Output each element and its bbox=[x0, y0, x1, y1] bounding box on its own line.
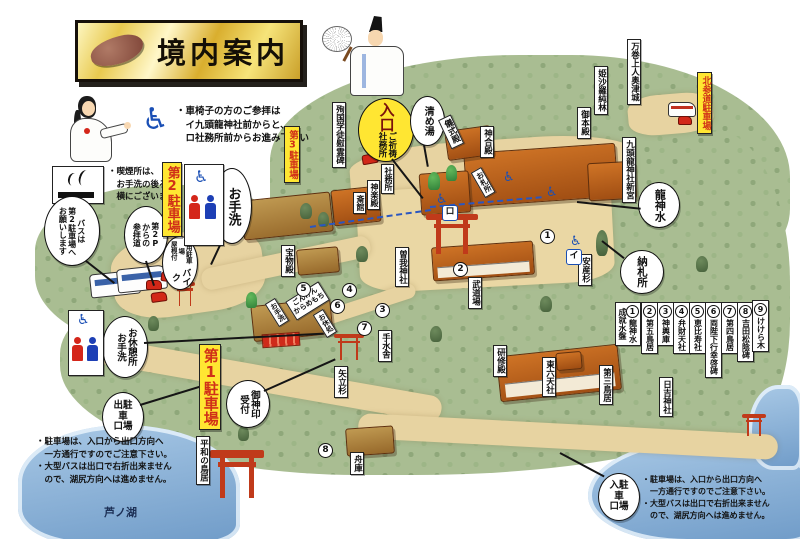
legend-item-1: 1龍神水 成就水盤 bbox=[615, 302, 641, 346]
tree bbox=[540, 296, 552, 312]
yatatesugi-label: 矢立杉 bbox=[334, 366, 348, 398]
map-number-3: 3 bbox=[375, 303, 390, 318]
wheelchair-icon: ♿ bbox=[570, 234, 582, 249]
map-number-1: 1 bbox=[540, 229, 555, 244]
male-icon bbox=[87, 337, 98, 361]
parking2-sign: 第2駐車場 bbox=[162, 162, 182, 237]
budojo-label: 武道場 bbox=[468, 277, 482, 309]
wheelchair-icon: ♿ bbox=[194, 167, 208, 186]
parking-tree bbox=[246, 292, 257, 308]
route-marker-ro: ロ bbox=[442, 205, 458, 221]
ryujinsui-bubble: 龍神水 bbox=[638, 182, 680, 228]
map-canvas: 境内案内 ♿ ・車椅子の方のご参拝は イ九頭龍神社前からと、 ロ社務所前からお進… bbox=[0, 0, 800, 539]
car bbox=[678, 116, 692, 125]
shamusho-label: 社務所 bbox=[381, 164, 394, 194]
junkoku-memorial-label: 殉国学徒慰霊碑 bbox=[332, 102, 346, 168]
saikan-label: 斎館 bbox=[353, 192, 366, 214]
female-icon bbox=[189, 195, 200, 219]
legend-item-4: 4弁財天社 bbox=[673, 302, 690, 354]
kaguraden-label: 神楽殿 bbox=[367, 180, 380, 210]
entrance-sublabel: ご祈祷 社務所 bbox=[376, 132, 396, 158]
wheelchair-icon: ♿ bbox=[546, 185, 558, 200]
nosatsusho-bubble: 納札所 bbox=[620, 250, 664, 294]
third-torii-label: 第三鳥居 bbox=[599, 365, 613, 405]
map-number-7: 7 bbox=[357, 321, 372, 336]
parking3-sign: 第3駐車場 bbox=[284, 126, 300, 183]
yatate-torii bbox=[336, 334, 362, 360]
parking-exit-bubble: 出駐 車 口場 bbox=[102, 392, 144, 442]
shrine-attendant-figure bbox=[68, 96, 132, 176]
tree bbox=[300, 203, 312, 219]
wheelchair-icon: ♿ bbox=[142, 102, 169, 137]
entrance-label: 入口 bbox=[377, 102, 394, 132]
wheelchair-icon: ♿ bbox=[77, 312, 90, 328]
restroom-iconbox-lower: ♿ bbox=[68, 310, 104, 376]
hiyoshi-shrine-label: 日吉神社 bbox=[659, 377, 673, 417]
peace-torii bbox=[214, 450, 260, 498]
kuzuryu-shingu-label: 九頭龍神社新宮 bbox=[622, 137, 636, 203]
parking-entrance-bubble: 入駐 車 口場 bbox=[598, 473, 640, 521]
map-number-2: 2 bbox=[453, 262, 468, 277]
wheelchair-icon: ♿ bbox=[503, 170, 515, 185]
plaque-ornament bbox=[88, 31, 147, 70]
legend-item-7: 7第四鳥居 bbox=[721, 302, 738, 354]
female-icon bbox=[72, 337, 83, 361]
treasure-hall-building bbox=[296, 246, 340, 276]
map-number-5: 5 bbox=[296, 282, 311, 297]
southeast-torii bbox=[744, 414, 764, 436]
map-number-4: 4 bbox=[342, 283, 357, 298]
north-parking-sign: 北参道駐車場 bbox=[697, 72, 712, 134]
tree bbox=[148, 316, 159, 331]
soga-shrine-label: 曽我神社 bbox=[395, 247, 409, 287]
homotsuden-label: 宝物殿 bbox=[281, 245, 295, 277]
courtyard-tree bbox=[428, 172, 440, 190]
kenshuden-label: 研修殿 bbox=[493, 345, 507, 377]
tree bbox=[356, 246, 368, 262]
peace-torii-label: 平和の鳥居 bbox=[196, 436, 210, 485]
page-title: 境内案内 bbox=[152, 30, 294, 72]
rest-area-bubble: お休憩所 お手洗 bbox=[102, 316, 148, 378]
priest-figure bbox=[322, 16, 406, 104]
parking-note-right: ・駐車場は、入口から出口方向へ 一方通行ですのでご注意下さい。 ・大型バスは出口… bbox=[642, 476, 770, 524]
route-marker-i: イ bbox=[566, 249, 582, 265]
restroom-iconbox-upper: ♿ bbox=[184, 164, 224, 246]
goshinin-bubble: 御神印 受付 bbox=[226, 380, 270, 428]
temizusha-label: 手水舎 bbox=[378, 330, 392, 362]
dairokuten-building bbox=[555, 351, 582, 371]
lake-name-label: 芦ノ湖 bbox=[104, 504, 137, 520]
gohonden-label: 御本殿 bbox=[577, 107, 591, 139]
male-icon bbox=[205, 195, 216, 219]
bus-request-bubble: バスは 第2駐車場へ お願いします bbox=[44, 196, 100, 266]
legend-item-3: 3神輿庫 bbox=[657, 302, 674, 346]
map-number-6: 6 bbox=[330, 299, 345, 314]
wheelchair-icon: ♿ bbox=[436, 192, 448, 207]
parking-note-left: ・駐車場は、入口から出口方向へ 一方通行ですのでご注意下さい。 ・大型バスは出口… bbox=[36, 438, 172, 488]
tree bbox=[238, 426, 249, 441]
courtyard-tree bbox=[446, 165, 457, 181]
title-plaque: 境内案内 bbox=[75, 20, 303, 82]
legend-item-6: 6両陛下行幸啓碑 bbox=[705, 302, 722, 378]
legend-item-2: 2第五鳥居 bbox=[641, 302, 658, 354]
entrance-bubble: 入口 ご祈祷 社務所 bbox=[358, 98, 414, 162]
legend-item-5: 5恵比寿社 bbox=[689, 302, 706, 354]
boathouse-label: 舟庫 bbox=[350, 452, 364, 475]
shuttle-bus bbox=[668, 102, 696, 117]
himeshara-label: 姫沙羅純林 bbox=[594, 66, 608, 115]
tree bbox=[696, 256, 708, 272]
parking1-sign: 第1駐車場 bbox=[199, 344, 221, 430]
dairokuten-label: 東六天社 bbox=[542, 357, 556, 397]
shingoden-label: 神合殿 bbox=[480, 126, 494, 158]
bike-label: バイク bbox=[170, 265, 191, 289]
mangan-tomb-label: 万巻上人奥津城 bbox=[627, 39, 641, 105]
map-number-8: 8 bbox=[318, 443, 333, 458]
legend-item-9: 9けけら木 bbox=[752, 300, 769, 352]
tree bbox=[430, 326, 442, 342]
